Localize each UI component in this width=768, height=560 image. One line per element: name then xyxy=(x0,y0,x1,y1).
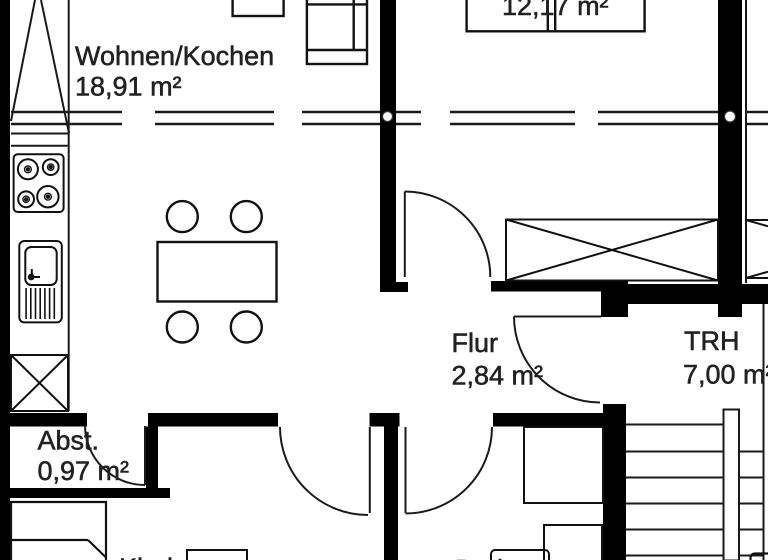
svg-text:Abst.: Abst. xyxy=(38,426,100,456)
svg-text:18,91 m²: 18,91 m² xyxy=(75,72,182,102)
svg-text:TRH: TRH xyxy=(684,326,740,356)
svg-text:7,00 m²: 7,00 m² xyxy=(683,360,768,390)
svg-text:Wohnen/Kochen: Wohnen/Kochen xyxy=(75,41,274,71)
svg-text:Kind: Kind xyxy=(119,553,173,560)
svg-text:12,17 m²: 12,17 m² xyxy=(502,0,609,21)
svg-text:2,84 m²: 2,84 m² xyxy=(452,361,544,391)
svg-text:Bad: Bad xyxy=(455,555,503,560)
svg-text:0,97 m²: 0,97 m² xyxy=(38,456,130,486)
svg-text:Flur: Flur xyxy=(452,328,499,358)
